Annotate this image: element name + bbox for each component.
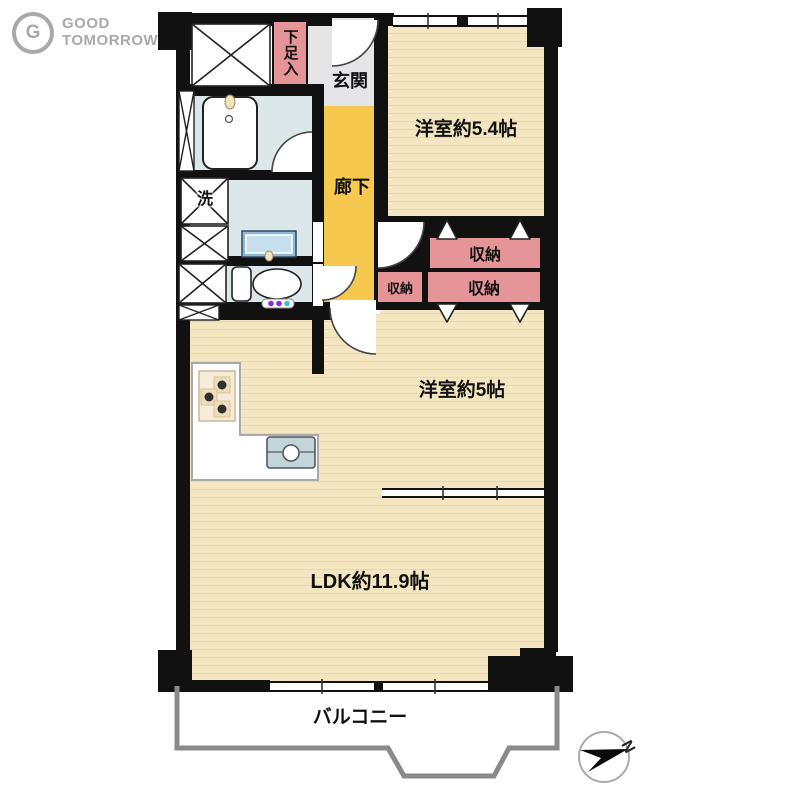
entrance-door	[332, 20, 378, 66]
entrance-label: 玄関	[322, 72, 378, 92]
x-box-thin	[179, 305, 219, 320]
toilet	[232, 267, 301, 308]
logo-line1: GOOD	[62, 16, 158, 33]
balcony-label: バルコニー	[260, 708, 460, 729]
bathtub	[203, 95, 257, 169]
balcony-outline	[177, 686, 557, 776]
hallway-label: 廊下	[328, 178, 376, 198]
x-box-mid	[181, 226, 228, 261]
laundry-label: 洗	[186, 191, 224, 209]
bedroom1-label: 洋室約5.4帖	[388, 120, 544, 141]
bedroom2-door	[378, 222, 424, 268]
bathroom-door	[272, 132, 312, 172]
bath-drain	[226, 116, 233, 123]
x-pipe-strip	[179, 91, 194, 171]
logo: G GOOD TOMORROW	[12, 12, 158, 54]
closet-door-markers	[437, 220, 530, 322]
stove	[199, 371, 235, 421]
kitchen-sink	[267, 437, 315, 468]
floor-plan: 下足入 収納 収納 収納	[0, 0, 800, 800]
washbasin	[242, 231, 296, 261]
kitchen-counter	[192, 363, 318, 480]
toilet-door	[322, 266, 356, 300]
x-box-toilet-side	[179, 264, 226, 303]
logo-text: GOOD TOMORROW	[62, 16, 158, 50]
logo-line2: TOMORROW	[62, 33, 158, 50]
bedroom2-label: 洋室約5帖	[380, 381, 544, 402]
ldk-door	[330, 308, 376, 354]
compass: N	[579, 732, 638, 782]
ldk-label: LDK約11.9帖	[250, 571, 490, 593]
logo-icon: G	[12, 12, 54, 54]
x-closet-entry	[192, 24, 270, 86]
bath-faucet	[225, 95, 235, 109]
